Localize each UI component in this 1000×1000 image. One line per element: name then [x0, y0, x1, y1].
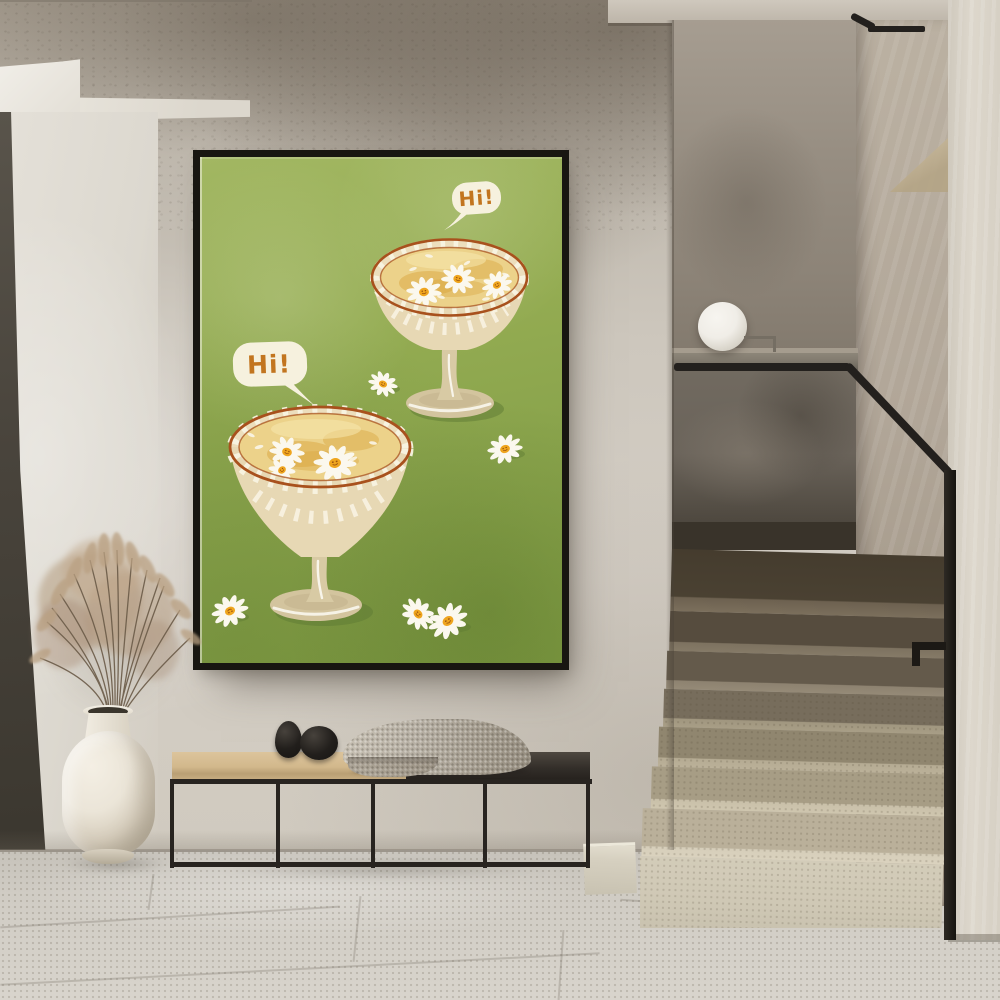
sphere-lamp	[698, 302, 747, 351]
dried-grass	[12, 522, 202, 712]
staircase-area	[636, 0, 1000, 1000]
steps-perspective	[640, 548, 952, 928]
lamp-stand	[744, 336, 776, 339]
glass-balustrade	[672, 370, 856, 522]
bench-leg	[276, 779, 280, 868]
bench-leg	[483, 779, 487, 868]
handrail-bracket-leg	[912, 642, 920, 666]
ceiling-edge	[0, 0, 252, 2]
lamp-stand-leg	[773, 338, 776, 352]
stair-back-wall	[672, 20, 858, 352]
balustrade-shadow-band	[672, 522, 856, 550]
vase	[62, 731, 155, 857]
poster-artwork: Hi!	[200, 157, 562, 663]
stair-steps	[640, 548, 952, 928]
stair-step	[641, 808, 952, 865]
bench-leg	[170, 779, 174, 868]
bench-leg	[371, 779, 375, 868]
wall-corner-shadow	[666, 20, 674, 850]
speech-bubble-bottom: Hi!	[232, 341, 314, 409]
bench-bottom-rail	[170, 862, 590, 867]
stair-step	[670, 549, 952, 620]
upper-handrail	[868, 26, 925, 32]
soffit-bright-face	[0, 60, 80, 116]
stair-post	[944, 470, 956, 940]
interior-scene: Hi!	[0, 0, 1000, 1000]
speech-text-top: Hi!	[458, 185, 495, 211]
bench-top-rail	[170, 779, 592, 784]
speech-text-bottom: Hi!	[247, 349, 292, 380]
bench	[168, 715, 594, 873]
decor-stone	[300, 726, 338, 760]
stair-step	[640, 856, 943, 928]
handrail-horizontal	[674, 363, 850, 371]
speech-bubble-top: Hi!	[441, 180, 503, 230]
artwork-illustration: Hi!	[200, 157, 562, 663]
bench-leg	[586, 779, 590, 868]
decor-stone	[275, 721, 302, 758]
poster-frame: Hi!	[193, 150, 569, 670]
